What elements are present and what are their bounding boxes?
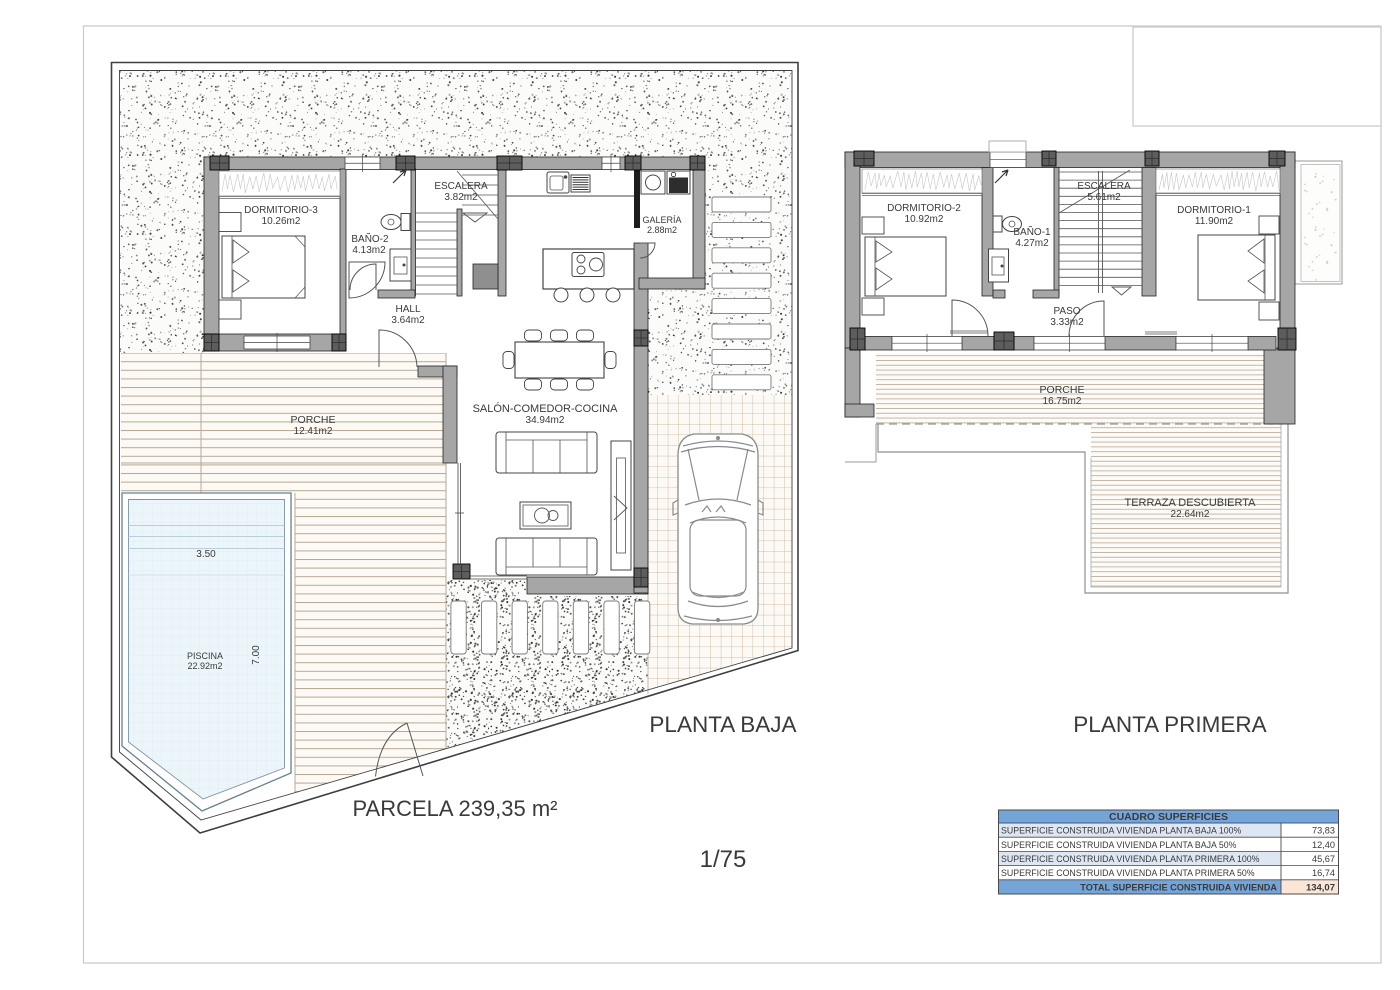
svg-text:SUPERFICIE CONSTRUIDA VIVIENDA: SUPERFICIE CONSTRUIDA VIVIENDA PLANTA BA… xyxy=(1001,826,1242,836)
svg-text:134,07: 134,07 xyxy=(1306,883,1335,894)
svg-text:5.61m2: 5.61m2 xyxy=(1087,192,1121,203)
svg-text:ESCALERA: ESCALERA xyxy=(1077,181,1131,192)
svg-text:10.92m2: 10.92m2 xyxy=(905,214,944,225)
svg-text:22.92m2: 22.92m2 xyxy=(187,661,222,671)
svg-text:3.82m2: 3.82m2 xyxy=(444,192,478,203)
svg-text:PLANTA PRIMERA: PLANTA PRIMERA xyxy=(1073,712,1266,737)
svg-text:12,40: 12,40 xyxy=(1312,840,1335,850)
svg-text:PASO: PASO xyxy=(1053,306,1080,317)
svg-text:SUPERFICIE CONSTRUIDA VIVIENDA: SUPERFICIE CONSTRUIDA VIVIENDA PLANTA PR… xyxy=(1001,854,1260,864)
svg-text:SALÓN-COMEDOR-COCINA: SALÓN-COMEDOR-COCINA xyxy=(473,402,619,415)
svg-text:45,67: 45,67 xyxy=(1312,854,1335,864)
svg-text:TOTAL SUPERFICIE CONSTRUIDA VI: TOTAL SUPERFICIE CONSTRUIDA VIVIENDA xyxy=(1080,883,1277,893)
svg-text:7.00: 7.00 xyxy=(251,645,262,665)
svg-text:3.33m2: 3.33m2 xyxy=(1050,317,1084,328)
svg-text:PISCINA: PISCINA xyxy=(187,651,223,661)
svg-text:BAÑO-1: BAÑO-1 xyxy=(1013,225,1051,238)
svg-text:BAÑO-2: BAÑO-2 xyxy=(351,232,389,245)
svg-text:16.75m2: 16.75m2 xyxy=(1043,396,1082,407)
svg-text:DORMITORIO-2: DORMITORIO-2 xyxy=(887,203,961,214)
svg-text:HALL: HALL xyxy=(395,304,420,315)
svg-text:SUPERFICIE CONSTRUIDA VIVIENDA: SUPERFICIE CONSTRUIDA VIVIENDA PLANTA BA… xyxy=(1001,840,1237,850)
svg-text:3.64m2: 3.64m2 xyxy=(391,315,425,326)
svg-text:PARCELA 239,35 m²: PARCELA 239,35 m² xyxy=(352,796,557,821)
svg-text:10.26m2: 10.26m2 xyxy=(262,216,301,227)
svg-text:GALERÍA: GALERÍA xyxy=(642,215,681,225)
svg-text:34.94m2: 34.94m2 xyxy=(526,415,565,426)
svg-text:ESCALERA: ESCALERA xyxy=(434,181,488,192)
svg-text:4.27m2: 4.27m2 xyxy=(1015,238,1049,249)
svg-text:12.41m2: 12.41m2 xyxy=(294,426,333,437)
svg-text:SUPERFICIE CONSTRUIDA VIVIENDA: SUPERFICIE CONSTRUIDA VIVIENDA PLANTA PR… xyxy=(1001,868,1255,878)
svg-text:11.90m2: 11.90m2 xyxy=(1195,216,1234,227)
svg-text:73,83: 73,83 xyxy=(1312,826,1335,836)
svg-text:DORMITORIO-3: DORMITORIO-3 xyxy=(244,205,318,216)
svg-text:16,74: 16,74 xyxy=(1312,868,1335,878)
svg-text:CUADRO SUPERFICIES: CUADRO SUPERFICIES xyxy=(1109,811,1228,823)
svg-text:TERRAZA DESCUBIERTA: TERRAZA DESCUBIERTA xyxy=(1124,497,1256,509)
svg-text:PORCHE: PORCHE xyxy=(1040,384,1085,396)
svg-text:2.88m2: 2.88m2 xyxy=(647,225,677,235)
svg-text:DORMITORIO-1: DORMITORIO-1 xyxy=(1177,205,1251,216)
svg-text:PORCHE: PORCHE xyxy=(291,414,336,426)
svg-text:1/75: 1/75 xyxy=(700,846,747,873)
svg-text:PLANTA BAJA: PLANTA BAJA xyxy=(649,712,796,737)
svg-text:3.50: 3.50 xyxy=(196,549,216,560)
svg-text:4.13m2: 4.13m2 xyxy=(352,245,386,256)
svg-text:22.64m2: 22.64m2 xyxy=(1171,509,1210,520)
